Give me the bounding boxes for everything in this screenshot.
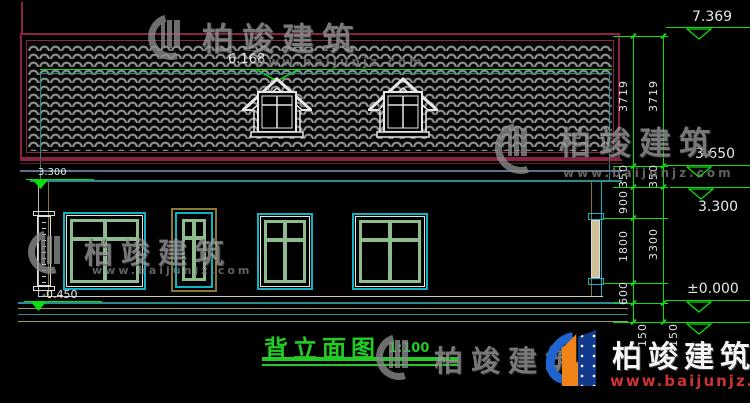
watermark-text: 柏竣建筑 (202, 14, 362, 60)
elevation-label-0000: ±0.000 (687, 282, 739, 296)
watermark-logo-icon (148, 14, 194, 60)
dim-extension-line (604, 283, 668, 284)
downspout-right-bracket-top (588, 213, 604, 220)
roof-level-line (40, 73, 610, 74)
ground-line-4 (18, 321, 628, 322)
elevation-triangle-icon (31, 302, 46, 311)
dim-label-outer-3300: 3300 (648, 228, 659, 260)
dormer-window-left (242, 74, 312, 142)
watermark-left: 柏竣建筑 www.baijunjz.com (28, 222, 288, 292)
dormer-window-right (368, 74, 438, 142)
watermark-url: www.baijunjz.com (92, 264, 252, 277)
elevation-triangle-icon (686, 28, 712, 40)
watermark-logo-icon (28, 230, 72, 274)
wall-base-line (38, 296, 603, 297)
elevation-label-7369: 7.369 (692, 10, 732, 24)
watermark-top: 柏竣建筑 www.baijunjz.com (148, 10, 568, 70)
watermark-logo-icon (495, 122, 547, 174)
dim-label-outer-3719: 3719 (648, 80, 659, 112)
dim-extension-line (604, 218, 668, 219)
elevation-label-left-3300: 3.300 (38, 168, 67, 178)
window-4 (352, 213, 428, 290)
brand-tower-icon (578, 330, 596, 386)
dim-label-inner-1800: 1800 (618, 230, 629, 262)
dim-label-inner-600: 600 (618, 281, 629, 305)
elevation-label-3300: 3.300 (698, 200, 738, 214)
roof-left-extension-line (21, 2, 23, 34)
window-4-transom (359, 238, 421, 242)
watermark-text: 柏竣建筑 (559, 118, 719, 164)
elevation-triangle-icon (686, 301, 712, 313)
watermark-url: www.baijunjz.com (563, 166, 734, 180)
watermark-logo-icon (376, 334, 422, 380)
elevation-triangle-icon (33, 180, 48, 189)
cad-elevation-canvas: 6.168 (0, 0, 750, 403)
watermark-url: www.baijunjz.com (254, 55, 425, 69)
wall-hidden-line-left (40, 73, 41, 181)
downspout-right (591, 220, 600, 278)
ground-line-1 (18, 302, 628, 304)
ground-line-2 (18, 308, 628, 309)
watermark-right: 柏竣建筑 www.baijunjz.com (495, 112, 750, 192)
brand-name: 柏竣建筑 (612, 332, 750, 376)
window-4-mullion (388, 220, 392, 283)
brand-url: www.baijunjz.com (610, 372, 750, 390)
dim-label-inner-900: 900 (618, 190, 629, 214)
downspout-right-bracket-bottom (588, 278, 604, 285)
ground-line-3 (18, 314, 628, 315)
dim-label-inner-3719: 3719 (618, 80, 629, 112)
